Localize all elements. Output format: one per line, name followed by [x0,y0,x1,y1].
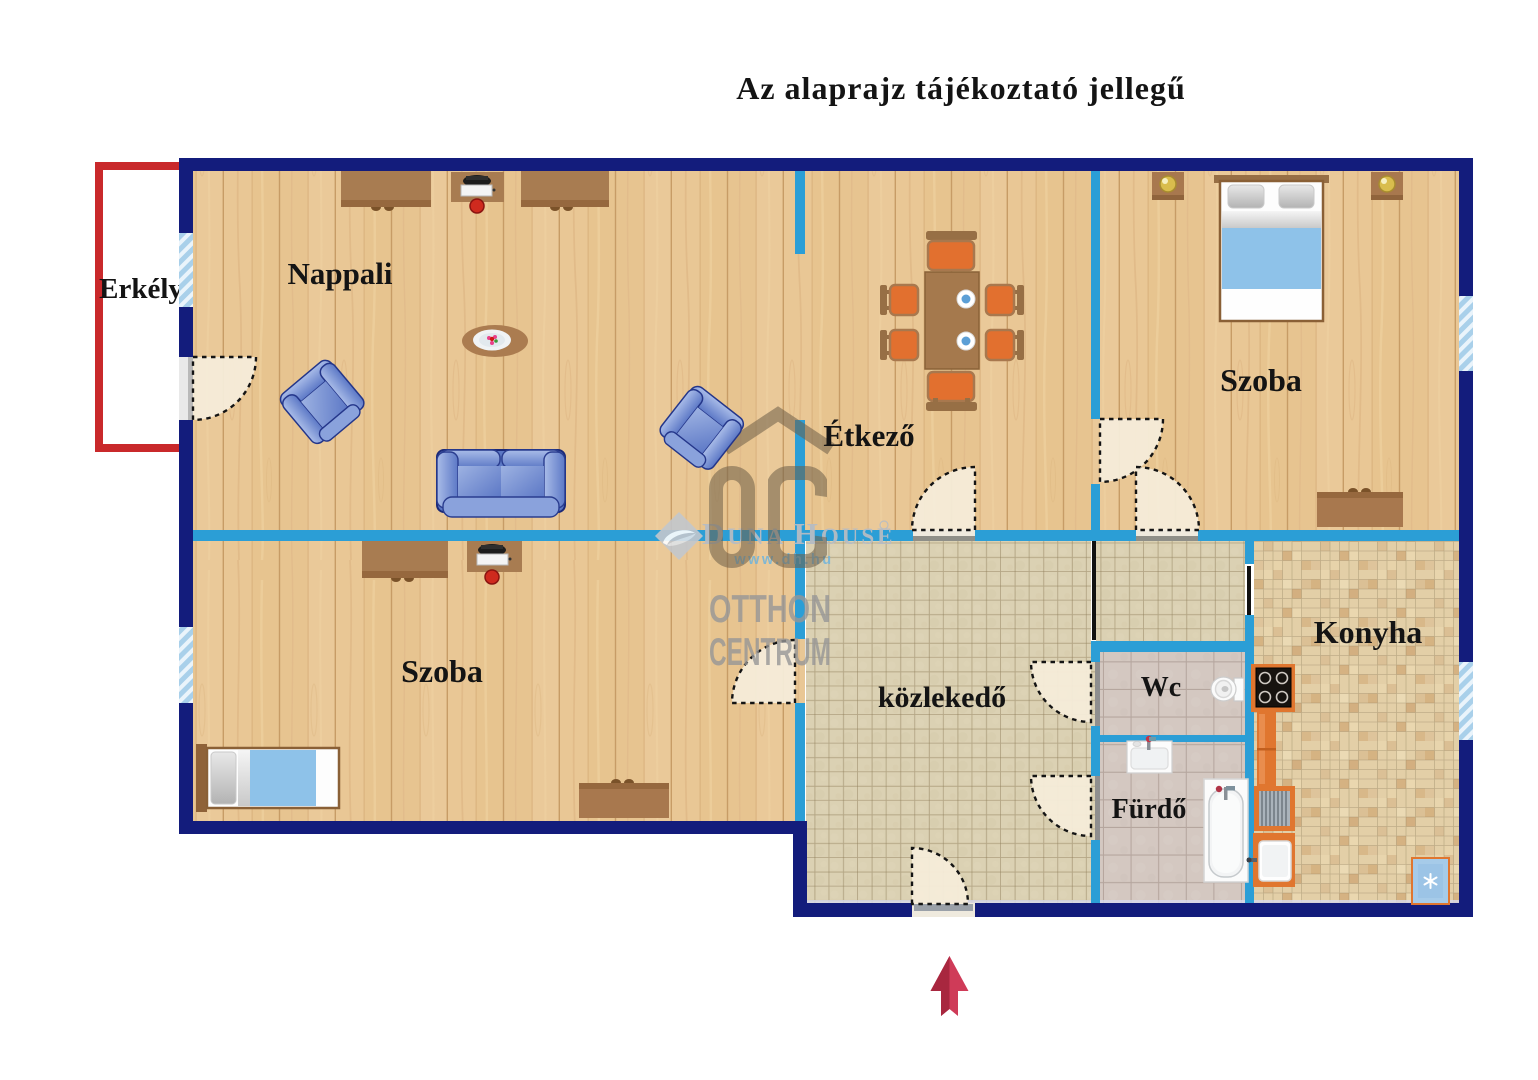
svg-text:Konyha: Konyha [1314,614,1422,650]
svg-text:Fürdő: Fürdő [1112,794,1187,825]
svg-text:Erkély: Erkély [99,273,183,305]
svg-text:Az alaprajz tájékoztató jelleg: Az alaprajz tájékoztató jellegű [736,70,1186,106]
svg-text:Szoba: Szoba [401,653,483,689]
svg-text:Nappali: Nappali [287,256,392,291]
svg-text:közlekedő: közlekedő [878,681,1006,714]
svg-text:Szoba: Szoba [1220,362,1302,398]
svg-text:Étkező: Étkező [823,418,914,453]
svg-text:CENTRUM: CENTRUM [709,631,831,674]
svg-text:Wc: Wc [1141,672,1181,703]
svg-text:OTTHON: OTTHON [709,588,831,631]
